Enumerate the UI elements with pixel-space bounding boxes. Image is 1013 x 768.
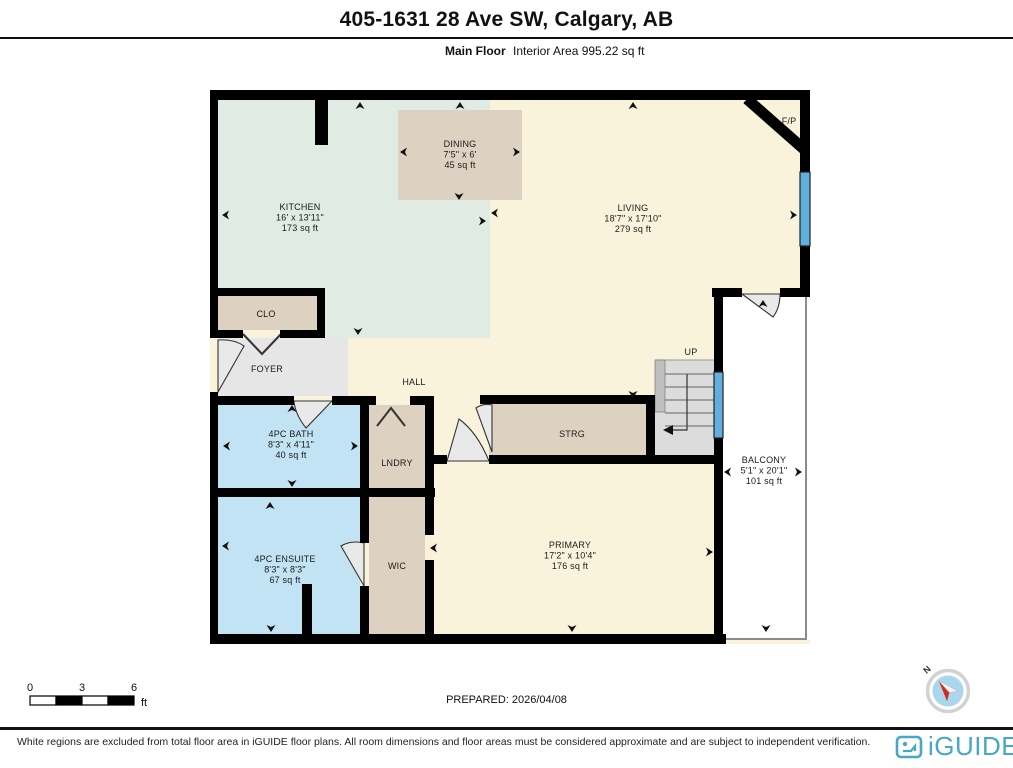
room-label-wic: WIC bbox=[388, 561, 406, 571]
stairs bbox=[655, 360, 714, 456]
room-lndry-fill bbox=[369, 405, 425, 488]
scale-tick-6: 6 bbox=[131, 682, 137, 694]
living-window bbox=[800, 172, 810, 246]
stairs-handrail bbox=[655, 360, 665, 412]
room-label-foyer: FOYER bbox=[251, 364, 283, 374]
floorplan-drawing: KITCHEN16' x 13'11"173 sq ftDINING7'5" x… bbox=[0, 0, 1013, 768]
room-label-kitchen: KITCHEN16' x 13'11"173 sq ft bbox=[276, 202, 324, 233]
footer-divider bbox=[0, 727, 1013, 730]
room-label-lndry: LNDRY bbox=[381, 458, 412, 468]
iguide-logo: iGUIDE bbox=[894, 731, 1013, 762]
iguide-logo-text: iGUIDE bbox=[928, 731, 1013, 762]
floorplan-page: 405-1631 28 Ave SW, Calgary, AB Main Flo… bbox=[0, 0, 1013, 768]
room-label-dining: DINING7'5" x 6'45 sq ft bbox=[444, 139, 477, 170]
compass-north-label: N bbox=[921, 664, 933, 676]
room-label-balcony: BALCONY5'1" x 20'1"101 sq ft bbox=[741, 455, 788, 486]
room-label-strg: STRG bbox=[559, 429, 585, 439]
stairwell-window bbox=[714, 372, 723, 438]
room-label-f-p: F/P bbox=[782, 116, 797, 126]
room-label-clo: CLO bbox=[256, 309, 275, 319]
iguide-logo-icon bbox=[894, 733, 924, 761]
room-label-hall: HALL bbox=[402, 377, 425, 387]
footer-disclaimer: White regions are excluded from total fl… bbox=[17, 736, 870, 748]
prepared-date: PREPARED: 2026/04/08 bbox=[0, 694, 1013, 706]
scale-tick-3: 3 bbox=[79, 682, 85, 694]
room-label-up: UP bbox=[685, 347, 698, 357]
scale-tick-0: 0 bbox=[27, 682, 33, 694]
room-kitchen-fill-lower bbox=[325, 294, 490, 338]
